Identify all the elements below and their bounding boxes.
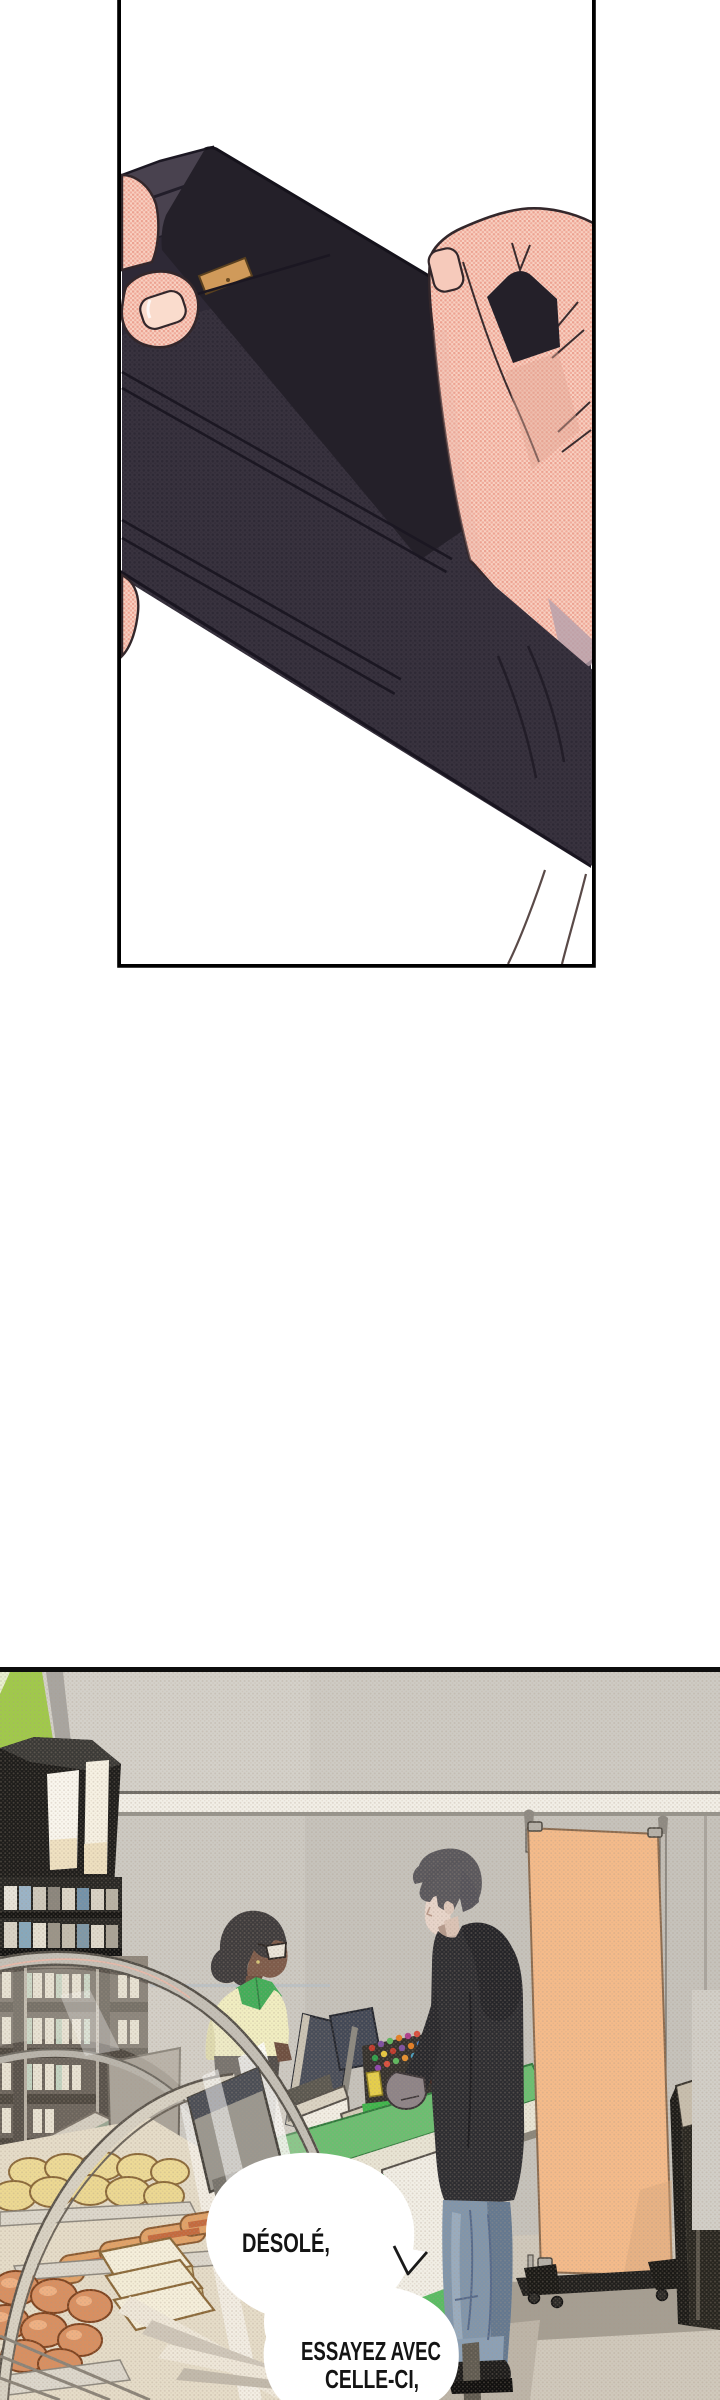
svg-text:CELLE-CI,: CELLE-CI,: [325, 2364, 419, 2394]
svg-text:DÉSOLÉ,: DÉSOLÉ,: [242, 2227, 330, 2258]
svg-text:ESSAYEZ AVEC: ESSAYEZ AVEC: [301, 2336, 441, 2366]
